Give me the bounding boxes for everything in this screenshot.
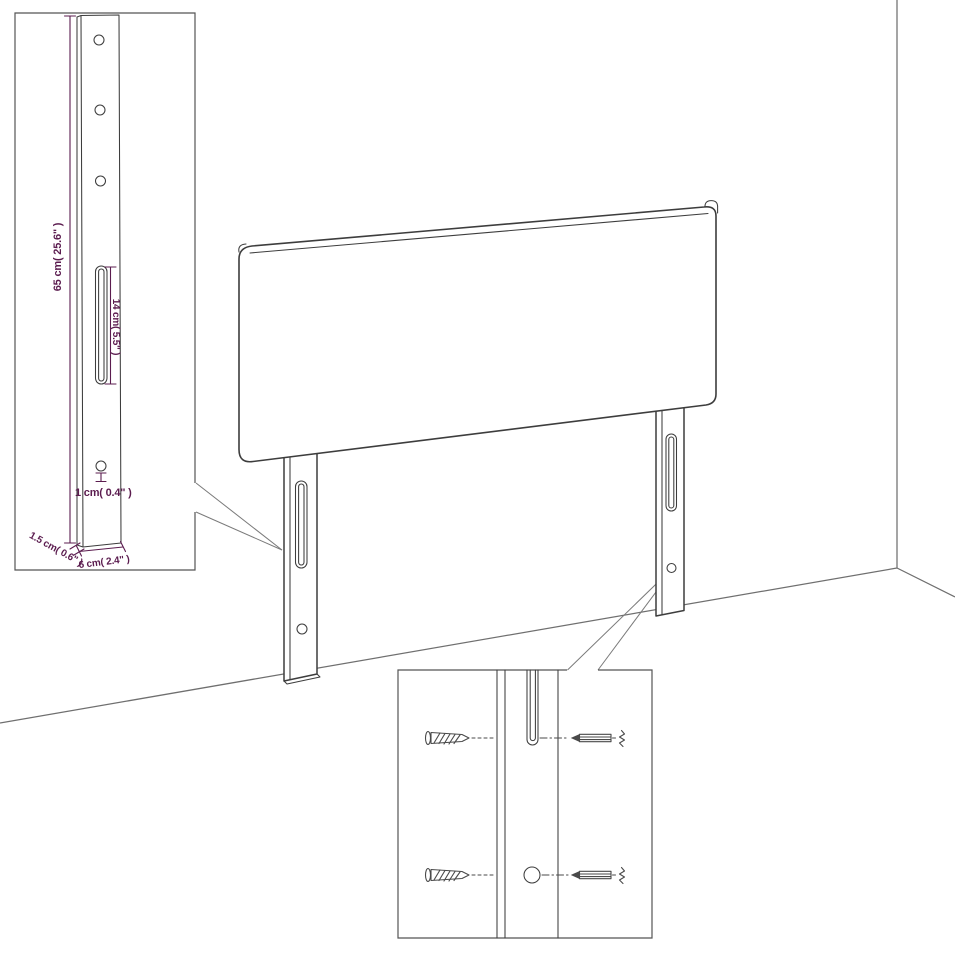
inset-border xyxy=(398,670,652,938)
mounting-hole-bottom xyxy=(96,176,106,186)
small-screw-hole xyxy=(96,461,106,471)
width-dimension-label: 6 cm( 2.4" ) xyxy=(78,554,130,571)
headboard-left-leg xyxy=(284,446,320,684)
callout-lines-right xyxy=(568,572,671,670)
headboard-panel xyxy=(239,201,718,462)
adjustment-slot xyxy=(96,266,108,384)
bolt-icon xyxy=(542,868,625,884)
slot-closeup xyxy=(527,670,538,745)
height-dimension-label: 65 cm( 25.6" ) xyxy=(52,222,64,291)
floor-line-left xyxy=(0,568,897,723)
thickness-dimension-label: 1.5 cm( 0.6" ) xyxy=(27,530,84,568)
screw-detail-inset xyxy=(398,670,652,938)
callout-lines-left xyxy=(196,483,282,550)
bolt-icon xyxy=(540,731,625,747)
leg-closeup xyxy=(497,670,558,938)
thickness-dimension: 1.5 cm( 0.6" ) xyxy=(27,530,84,568)
width-dimension: 6 cm( 2.4" ) xyxy=(77,542,131,572)
slot-dimension-label: 14 cm( 5.5" ) xyxy=(110,299,121,356)
headboard-right-leg xyxy=(656,397,684,616)
hole-closeup xyxy=(524,867,540,883)
floor-line-right xyxy=(897,568,955,597)
hole-dimension-label: 1 cm( 0.4" ) xyxy=(75,487,132,499)
mounting-hole-top xyxy=(94,35,104,45)
headboard-dimension-diagram: 65 cm( 25.6" ) 14 cm( 5.5" ) 1 cm( 0.4" … xyxy=(0,0,955,955)
mounting-hole-middle xyxy=(95,105,105,115)
leg-front-view xyxy=(77,15,121,547)
diagram-canvas: 65 cm( 25.6" ) 14 cm( 5.5" ) 1 cm( 0.4" … xyxy=(0,0,955,955)
height-dimension: 65 cm( 25.6" ) xyxy=(52,16,76,543)
leg-dimension-inset: 65 cm( 25.6" ) 14 cm( 5.5" ) 1 cm( 0.4" … xyxy=(15,13,195,571)
hole-dimension: 1 cm( 0.4" ) xyxy=(75,473,132,499)
wood-screw-icon xyxy=(426,869,496,882)
wood-screw-icon xyxy=(426,732,496,745)
